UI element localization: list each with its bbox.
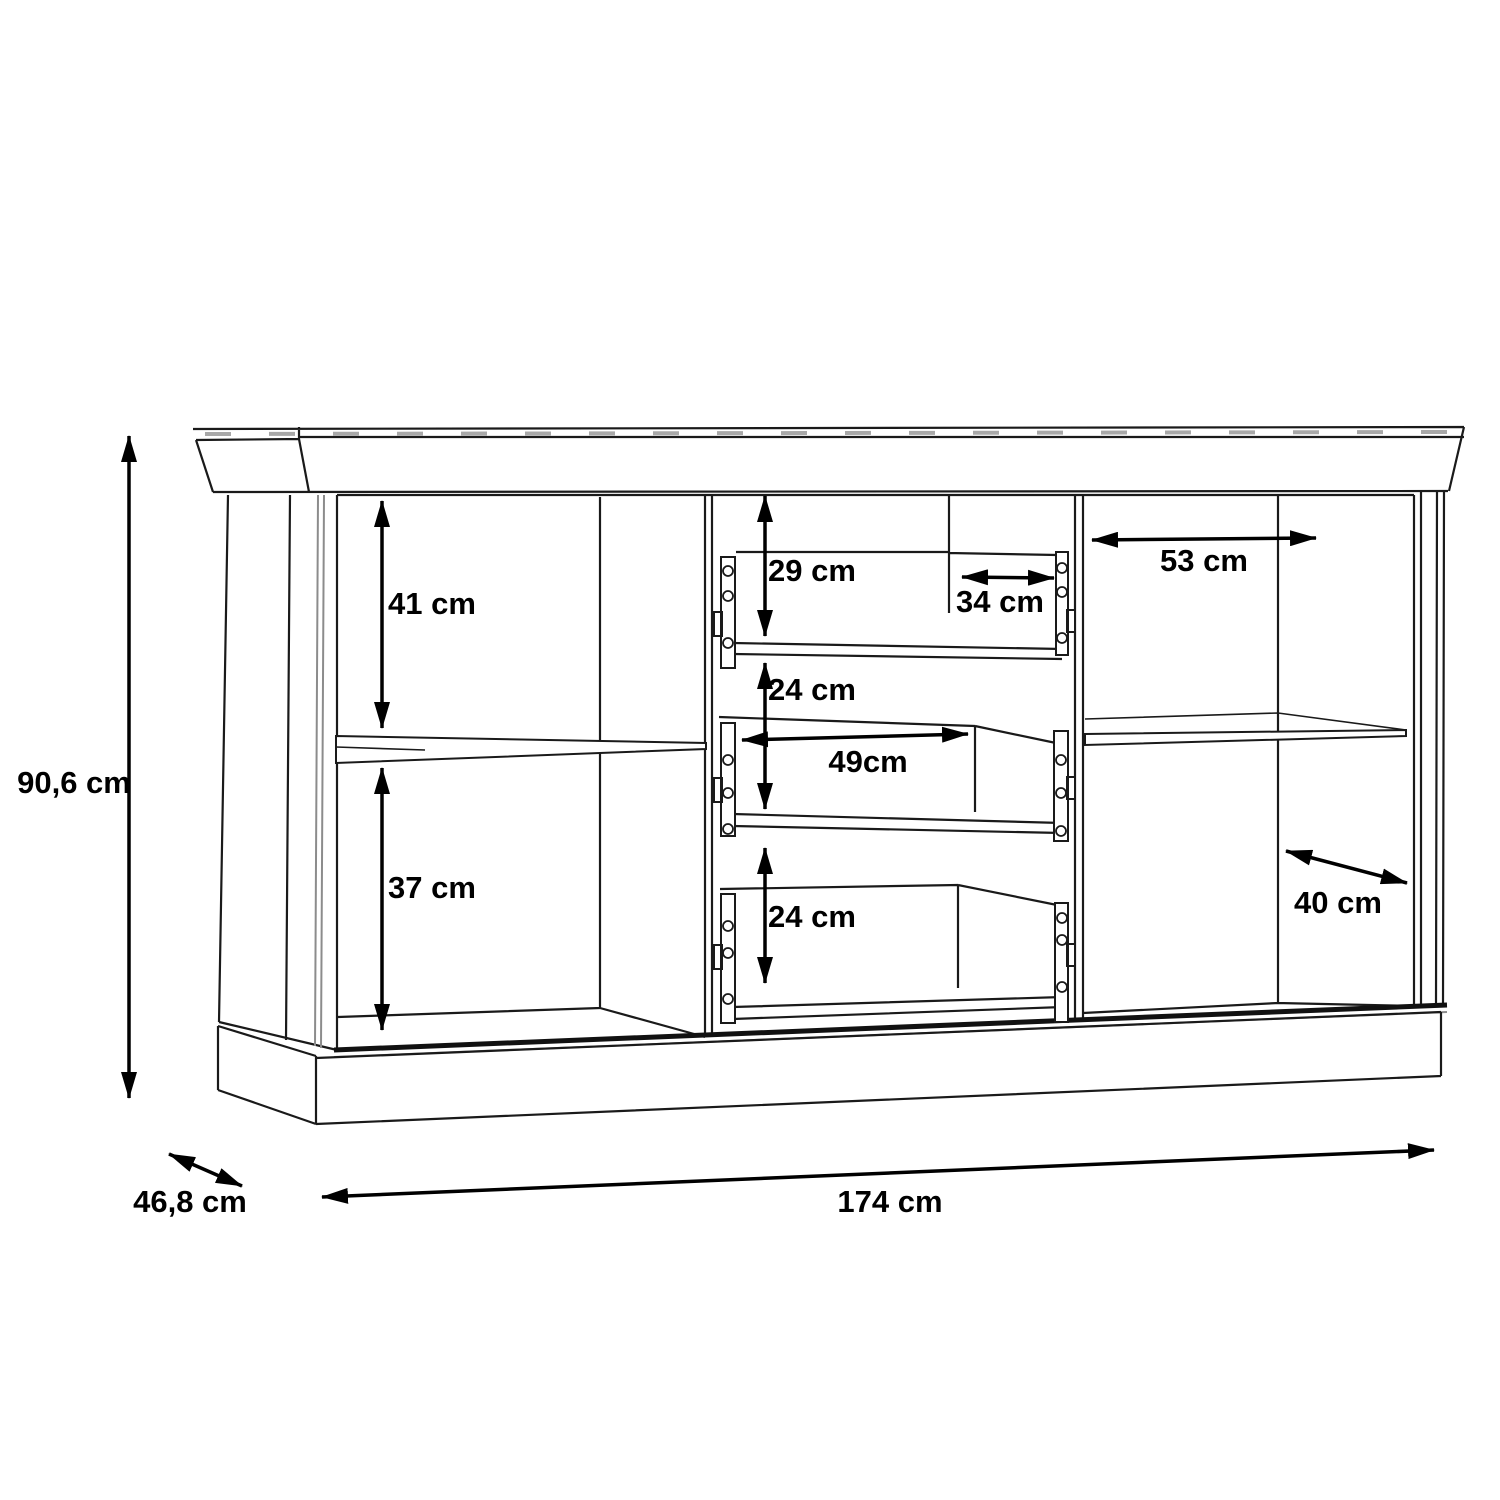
screw-icon [1057,563,1067,573]
dim-drawer-depth-arrow [962,577,1054,578]
dim-height-label: 90,6 cm [17,765,131,800]
screw-icon [723,994,733,1004]
dim-right-depth-arrow [1286,851,1407,883]
dim-left-upper-label: 41 cm [388,586,476,621]
cornice-wood-texture [205,432,1458,434]
screw-icon [1057,587,1067,597]
sideboard-dimension-diagram: 90,6 cm 41 cm 37 cm 29 cm 34 cm 24 cm 49… [0,0,1500,1500]
screw-icon [723,824,733,834]
dim-right-width-label: 53 cm [1160,543,1248,578]
screw-icon [1057,633,1067,643]
left-compartment-lines [338,495,712,1037]
dim-right-width-arrow [1092,538,1316,540]
dim-right-depth-label: 40 cm [1294,885,1382,920]
screw-icon [723,566,733,576]
right-stile-lines [1414,491,1444,1006]
screw-icon [723,948,733,958]
screw-icon [723,755,733,765]
screw-icon [1056,755,1066,765]
screw-icon [723,788,733,798]
dim-depth-label: 46,8 cm [133,1184,247,1219]
cornice-lines [193,427,1464,495]
right-shelf [1085,730,1406,745]
dim-depth-arrow [169,1154,242,1186]
screw-icon [1056,788,1066,798]
dim-drawer-top-label: 29 cm [768,553,856,588]
dim-drawer-mid-label: 24 cm [768,672,856,707]
screw-icon [723,591,733,601]
left-side-panel-lines [219,495,337,1050]
screw-icon [723,638,733,648]
dim-drawer-bottom-label: 24 cm [768,899,856,934]
dim-left-lower-label: 37 cm [388,870,476,905]
screw-icon [1057,913,1067,923]
screw-icon [1056,826,1066,836]
dim-drawer-depth-label: 34 cm [956,584,1044,619]
right-shelf-back-edges [1085,713,1406,730]
dim-drawer-width-label: 49cm [828,744,907,779]
screw-icon [723,921,733,931]
diagram-page: 90,6 cm 41 cm 37 cm 29 cm 34 cm 24 cm 49… [0,0,1500,1500]
dim-width-label: 174 cm [837,1184,942,1219]
screw-icon [1057,935,1067,945]
screw-icon [1057,982,1067,992]
drawer-rails [714,552,1075,1023]
drawer-screws [723,563,1067,1004]
left-door-gap-lines [315,495,324,1048]
dim-drawer-width-arrow [742,734,968,740]
